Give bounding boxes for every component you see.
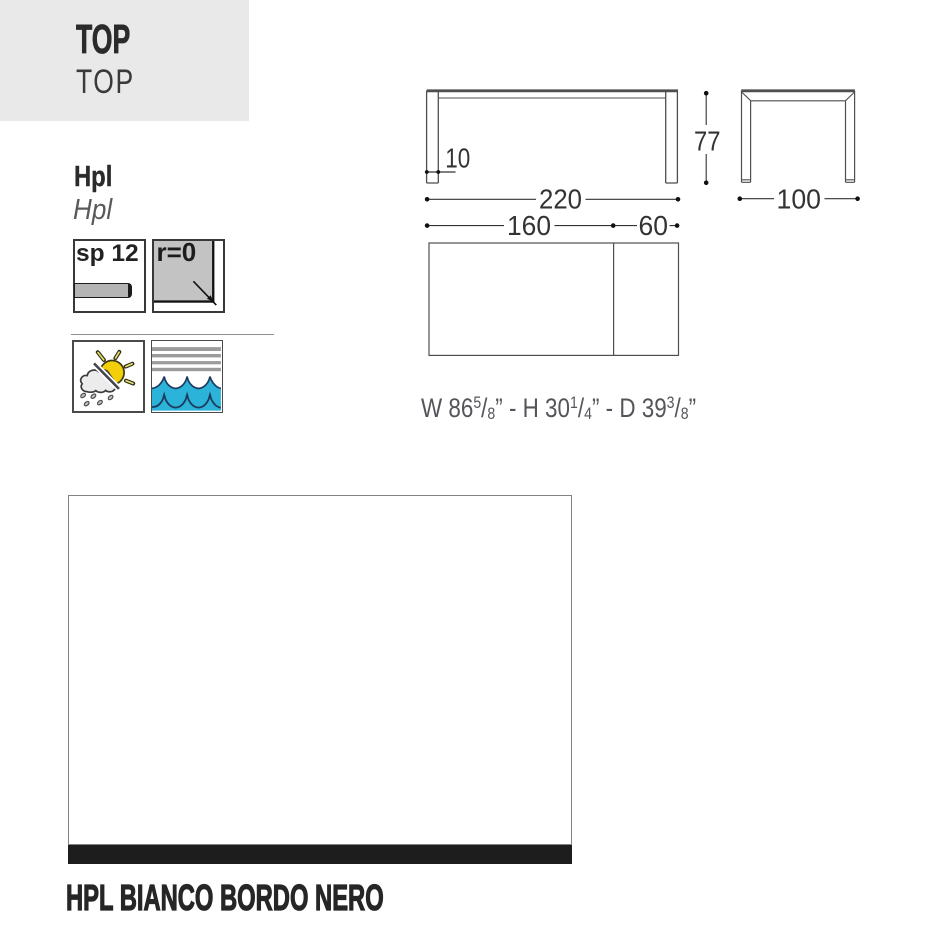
svg-text:60: 60 [639,210,669,241]
svg-text:100: 100 [777,184,822,215]
svg-text:10: 10 [445,142,470,173]
svg-text:160: 160 [507,210,551,241]
svg-text:77: 77 [694,125,721,156]
